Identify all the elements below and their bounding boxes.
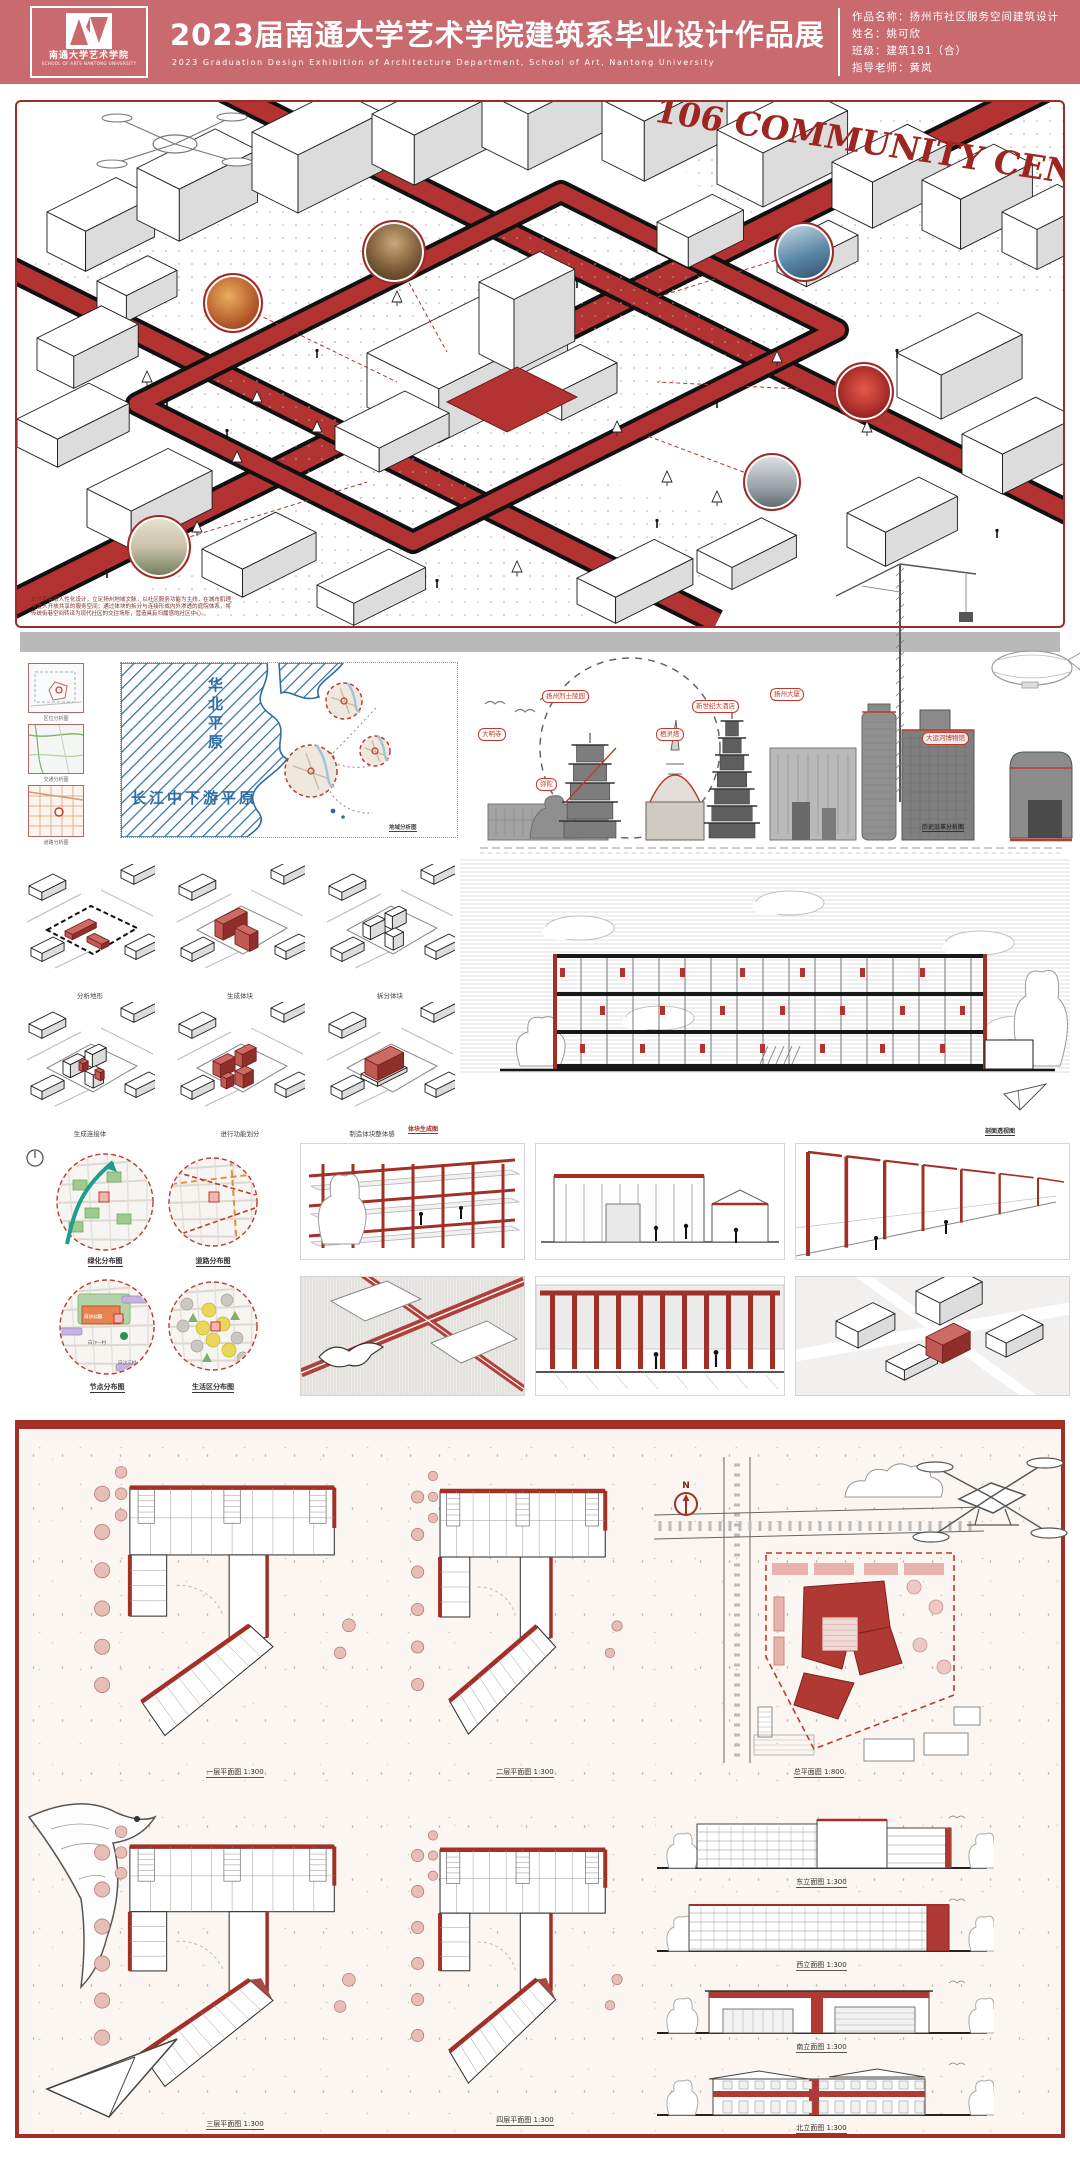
- siteplan-caption: 总平面图 1:800: [654, 1767, 984, 1777]
- site-axonometric-figure: 106 COMMUNITY CENTER 本方案着眼人性化设计，立足扬州地域文脉…: [15, 100, 1065, 628]
- vignette-teahouse: [362, 220, 426, 284]
- plan2-caption: 二层平面图 1:300: [407, 1767, 643, 1777]
- massing-caption-1: 分析地形: [25, 990, 155, 1000]
- floor-plan-1: [89, 1457, 381, 1763]
- greenery-label: 绿化分布图: [55, 1256, 155, 1266]
- floor-plan-4: [407, 1821, 643, 2109]
- region-map-caption: 地域分析图: [389, 823, 417, 832]
- node-label: 节点分布图: [58, 1382, 156, 1392]
- drone-sketch: [839, 1437, 1059, 1572]
- render-corridor: [795, 1143, 1070, 1260]
- logo-en-text: SCHOOL OF ARTS NANTONG UNIVERSITY: [38, 62, 141, 67]
- elev4-caption: 北立面图 1:300: [649, 2123, 994, 2133]
- massing-caption-4: 生成连接体: [25, 1128, 155, 1138]
- greenery-analysis-circle: [55, 1152, 155, 1252]
- university-logo: 南通大学艺术学院 SCHOOL OF ARTS NANTONG UNIVERSI…: [30, 6, 148, 78]
- drawings-panel: N 一层平面图 1:300 二层平面图 1:300 总平面图 1:800 三层平…: [15, 1420, 1065, 2138]
- region-analysis-map: 华北平原 长江中下游平原 地域分析图: [120, 662, 458, 838]
- baisha-village1-label: 白沙一村: [88, 1340, 106, 1346]
- floor-plan-2: [407, 1461, 643, 1761]
- elevation-north: [649, 2061, 994, 2121]
- render-colonnade: [535, 1276, 785, 1396]
- historic-montage: 大明寺 扬州烈士陵园 弥陀 栖灵塔 新世纪大酒店 扬州大厦 大运河博物馆 历史沿…: [470, 652, 1070, 860]
- massing-caption-2: 生成体块: [175, 990, 305, 1000]
- massing-step-4: [25, 1002, 155, 1124]
- render-roof-aerial: [300, 1276, 525, 1396]
- elev2-caption: 西立面图 1:300: [649, 1960, 994, 1970]
- montage-caption: 历史沿革分析图: [922, 822, 964, 832]
- massing-series-caption: 体块生成图: [408, 1124, 438, 1134]
- logo-cn-text: 南通大学艺术学院: [32, 51, 146, 62]
- class-row: 班级：建筑181（合）: [852, 43, 967, 58]
- chip-yangzhou-tower: 扬州大厦: [770, 688, 804, 701]
- elev1-caption: 东立面图 1:300: [649, 1877, 994, 1887]
- header-divider: [838, 8, 840, 76]
- chip-new-century: 新世纪大酒店: [692, 700, 739, 713]
- plan1-caption: 一层平面图 1:300: [89, 1767, 381, 1777]
- baisha-park-label: 白沙公园: [84, 1314, 102, 1320]
- road-minimap: [28, 785, 84, 837]
- elev3-caption: 南立面图 1:300: [649, 2042, 994, 2052]
- chip-canal-museum: 大运河博物馆: [922, 732, 969, 745]
- living-analysis-circle: [167, 1280, 259, 1372]
- vignette-city-building: [743, 453, 801, 511]
- massing-step-1: [25, 864, 155, 986]
- road-label: 道路分布图: [167, 1256, 259, 1266]
- north-plain-label: 华北平原: [205, 677, 226, 753]
- location-minimap: [28, 663, 84, 713]
- vignette-red-lanterns: [834, 362, 894, 422]
- massing-step-6: [325, 1002, 455, 1124]
- node-analysis-circle: [58, 1278, 156, 1376]
- elevation-east: [649, 1814, 994, 1874]
- compass-icon: [25, 1148, 45, 1168]
- section-perspective-figure: [460, 858, 1070, 1138]
- header-band: 南通大学艺术学院 SCHOOL OF ARTS NANTONG UNIVERSI…: [0, 0, 1080, 84]
- elevation-west: [649, 1897, 994, 1957]
- design-statement: 本方案着眼人性化设计，立足扬州地域文脉，以社区服务功能为主线，在城市肌理中置入开…: [31, 597, 231, 618]
- paper-plane-sketch: [39, 2029, 189, 2129]
- section-caption: 剖面透视图: [985, 1126, 1015, 1136]
- exhibition-subtitle-en: 2023 Graduation Design Exhibition of Arc…: [172, 58, 715, 67]
- chip-daming-temple: 大明寺: [478, 728, 506, 741]
- elevation-south: [649, 1979, 994, 2039]
- massing-step-3: [325, 864, 455, 986]
- render-white-axon: [795, 1276, 1070, 1396]
- chip-martyrs-park: 扬州烈士陵园: [542, 690, 589, 703]
- minimap-caption-3: 道路分析图: [22, 839, 90, 846]
- traffic-minimap: [28, 724, 84, 774]
- vignette-historic-church: [127, 515, 191, 579]
- north-arrow-icon: N: [671, 1481, 701, 1525]
- exhibition-poster: 南通大学艺术学院 SCHOOL OF ARTS NANTONG UNIVERSI…: [0, 0, 1080, 2160]
- chip-qiling-pagoda: 栖灵塔: [656, 728, 684, 741]
- project-name-row: 作品名称：扬州市社区服务空间建筑设计: [852, 9, 1059, 24]
- yangtze-plain-label: 长江中下游平原: [131, 787, 257, 808]
- massing-caption-3: 拆分体块: [325, 990, 455, 1000]
- massing-step-2: [175, 864, 305, 986]
- chip-mituo: 弥陀: [536, 778, 557, 791]
- divider-bar: [20, 632, 1060, 652]
- minimap-caption-2: 交通分析图: [22, 776, 90, 783]
- plan4-caption: 四层平面图 1:300: [407, 2115, 643, 2125]
- baisha-village3-label: 白沙三村: [118, 1360, 136, 1366]
- university-logo-icon: [66, 13, 112, 49]
- massing-step-5: [175, 1002, 305, 1124]
- advisor-row: 指导老师：黄岚: [852, 60, 933, 75]
- massing-caption-5: 进行功能划分: [175, 1128, 305, 1138]
- render-courtyard: [535, 1143, 785, 1260]
- minimap-caption-1: 区位分析图: [22, 715, 90, 722]
- student-name-row: 姓名：姚可欣: [852, 26, 921, 41]
- road-analysis-circle: [167, 1156, 259, 1248]
- living-label: 生活区分布图: [167, 1382, 259, 1392]
- exhibition-title: 2023届南通大学艺术学院建筑系毕业设计作品展: [170, 12, 825, 54]
- vignette-transit: [774, 222, 834, 282]
- render-structure-frame: [300, 1143, 525, 1260]
- vignette-lantern-street: [203, 273, 263, 333]
